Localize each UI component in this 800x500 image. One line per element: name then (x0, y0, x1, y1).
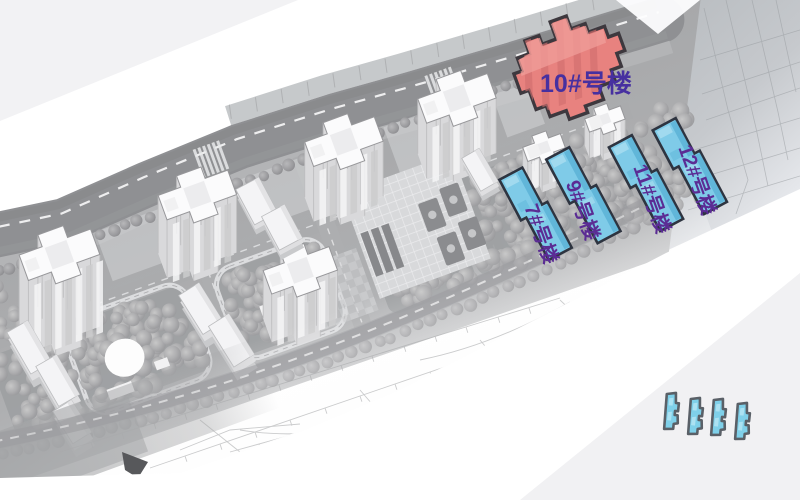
svg-text:10#号楼: 10#号楼 (540, 70, 632, 98)
